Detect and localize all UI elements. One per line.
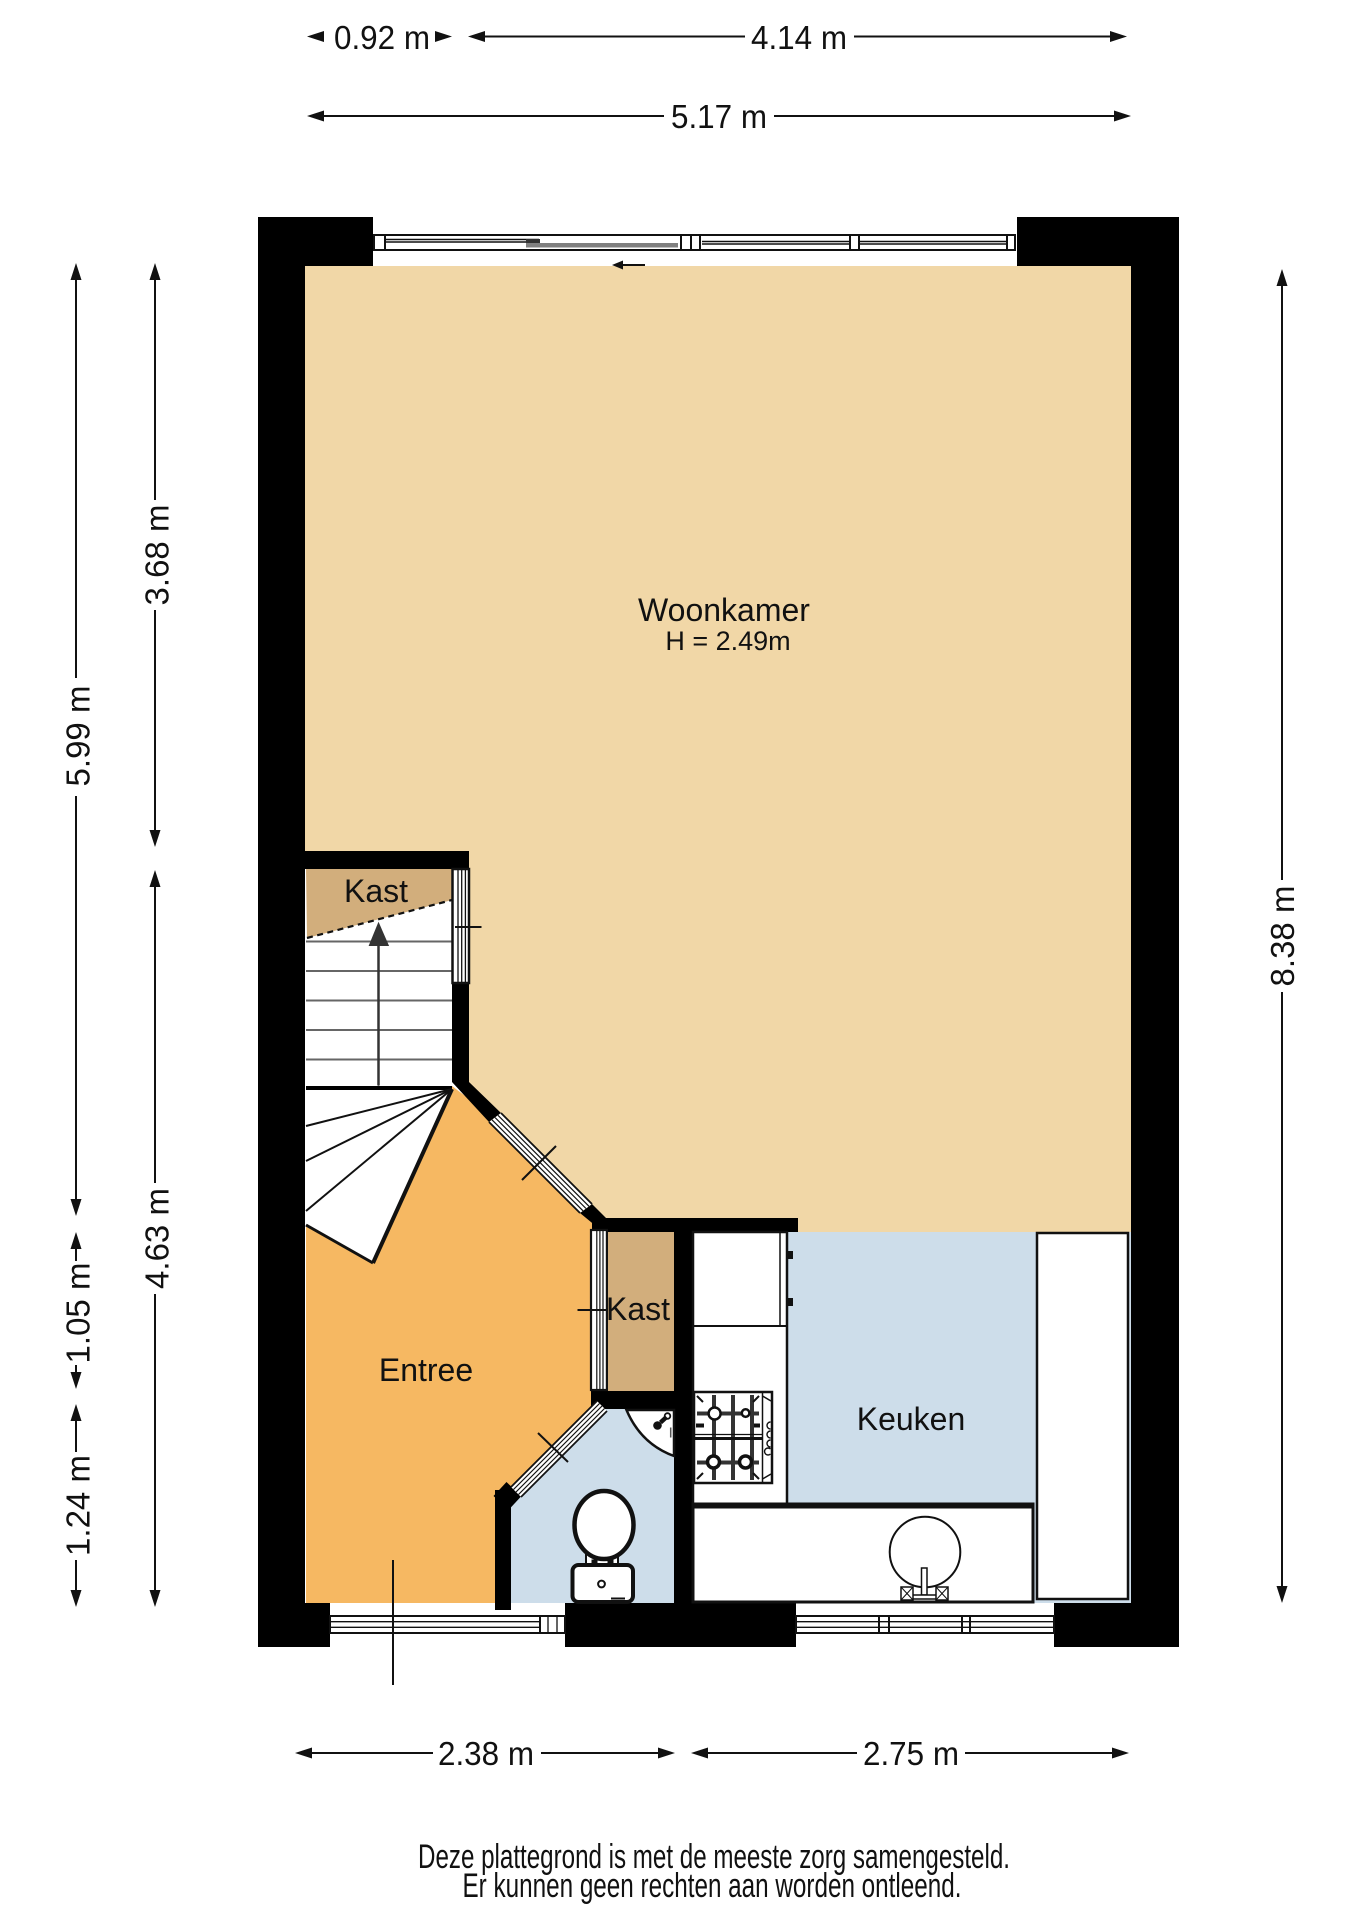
svg-text:4.63 m: 4.63 m — [139, 1188, 176, 1289]
svg-text:5.17 m: 5.17 m — [671, 98, 767, 135]
svg-text:Kast: Kast — [344, 873, 408, 909]
svg-text:H = 2.49m: H = 2.49m — [665, 626, 790, 656]
svg-text:Er kunnen geen rechten aan wor: Er kunnen geen rechten aan worden ontlee… — [463, 1867, 962, 1905]
svg-text:2.75 m: 2.75 m — [863, 1735, 959, 1772]
svg-text:4.14 m: 4.14 m — [751, 19, 847, 56]
svg-text:1.24 m: 1.24 m — [60, 1455, 97, 1556]
svg-text:3.68 m: 3.68 m — [139, 505, 176, 606]
svg-text:8.38 m: 8.38 m — [1264, 886, 1301, 987]
svg-text:Keuken: Keuken — [857, 1401, 966, 1437]
svg-text:0.92 m: 0.92 m — [334, 19, 430, 56]
svg-text:Entree: Entree — [379, 1352, 473, 1388]
svg-text:2.38 m: 2.38 m — [438, 1735, 534, 1772]
svg-text:1.05 m: 1.05 m — [60, 1263, 97, 1364]
svg-text:Kast: Kast — [606, 1291, 670, 1327]
svg-text:5.99 m: 5.99 m — [60, 686, 97, 787]
svg-text:Woonkamer: Woonkamer — [638, 592, 810, 628]
